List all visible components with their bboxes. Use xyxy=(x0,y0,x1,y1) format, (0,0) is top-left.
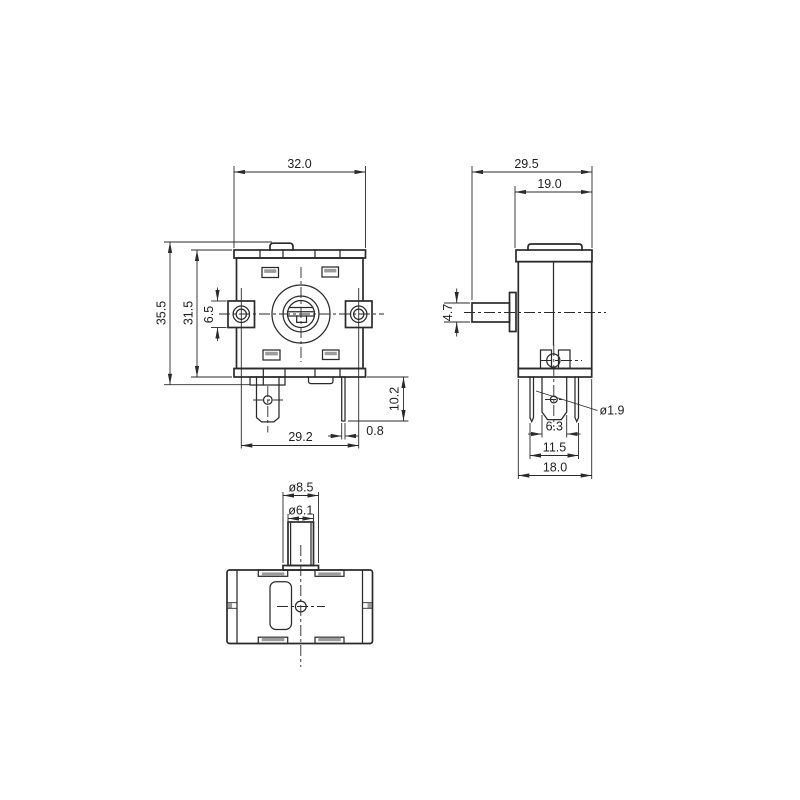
dim-label-tab-width: 6.3 xyxy=(546,420,563,434)
terminal-pin xyxy=(530,377,534,422)
slot-shade xyxy=(265,352,278,356)
side-top-band xyxy=(516,250,592,262)
dim-label-shaft-diameter: ø6.1 xyxy=(288,504,313,518)
front-slots xyxy=(262,267,339,360)
side-lug-detail xyxy=(541,350,583,369)
thin-pin xyxy=(342,377,345,421)
front-top-band xyxy=(234,250,366,258)
dim-label-body-width: 32.0 xyxy=(287,157,311,171)
latch-shade xyxy=(318,638,341,642)
dim-body-width: 32.0 xyxy=(234,157,366,248)
dim-label-bushing-diameter: ø8.5 xyxy=(288,481,313,495)
dim-label-ear-hole-spacing: 29.2 xyxy=(288,430,312,444)
dim-label-tab-hole-diameter: ø1.9 xyxy=(600,404,625,418)
bracket-shade xyxy=(368,603,372,608)
side-body xyxy=(472,244,592,377)
dim-label-pin-thickness: 0.8 xyxy=(366,424,383,438)
slot-shade xyxy=(325,352,337,355)
front-main-body xyxy=(237,258,364,369)
dim-pin-length: 10.2 xyxy=(348,377,409,421)
case-slot xyxy=(270,582,292,630)
latch-shade xyxy=(262,572,285,576)
side-main-body xyxy=(518,262,591,369)
side-view: ø1.9 29.5 19.0 4.7 6.3 xyxy=(441,157,625,479)
latch-shade xyxy=(262,638,285,642)
dim-label-shaft-height: 4.7 xyxy=(441,304,455,321)
dim-label-ear-height: 6.5 xyxy=(202,306,216,323)
side-bottom-band xyxy=(518,369,591,378)
dim-label-pin-length: 10.2 xyxy=(388,387,402,411)
bracket-shade xyxy=(228,603,232,608)
side-centerlines xyxy=(464,313,606,428)
dim-ear-hole-spacing: 29.2 xyxy=(241,430,358,446)
middle-foot xyxy=(309,377,334,384)
slot-shade xyxy=(264,269,276,273)
technical-drawing-rotary-switch: 32.0 35.5 31.5 6.5 29.2 xyxy=(0,0,800,800)
dim-label-pin-span: 11.5 xyxy=(543,441,566,455)
bottom-view: ø8.5 ø6.1 xyxy=(227,481,373,668)
shaft-key-notch xyxy=(297,316,307,322)
shaft-cylinder xyxy=(288,522,314,566)
side-top-cap xyxy=(528,244,582,250)
dim-total-depth: 29.5 xyxy=(472,157,592,300)
solder-tab xyxy=(542,377,567,420)
dim-label-base-depth: 18.0 xyxy=(543,461,567,475)
bottom-centerlines xyxy=(277,545,325,667)
top-knob-bump xyxy=(270,243,293,250)
dim-label-body-height: 31.5 xyxy=(182,301,196,325)
dim-label-total-height: 35.5 xyxy=(155,301,169,325)
slot-shade xyxy=(324,269,336,273)
dim-label-total-depth: 29.5 xyxy=(514,157,538,171)
drawing-canvas: 32.0 35.5 31.5 6.5 29.2 xyxy=(0,0,800,800)
dim-tab-width: 6.3 xyxy=(528,415,581,438)
latch-shade xyxy=(318,572,341,576)
dim-pin-thickness: 0.8 xyxy=(328,423,384,440)
dim-body-depth: 19.0 xyxy=(515,177,592,248)
shaft-boss xyxy=(510,293,517,332)
front-bottom-band xyxy=(234,369,366,378)
front-view: 32.0 35.5 31.5 6.5 29.2 xyxy=(155,157,409,449)
leader-tab-hole: ø1.9 xyxy=(536,391,625,418)
dim-label-body-depth: 19.0 xyxy=(537,177,561,191)
dim-shaft-diameter: ø6.1 xyxy=(288,504,314,522)
lug-flange xyxy=(250,377,285,385)
terminal-pin xyxy=(575,377,579,422)
terminal-lug-front xyxy=(250,377,345,422)
